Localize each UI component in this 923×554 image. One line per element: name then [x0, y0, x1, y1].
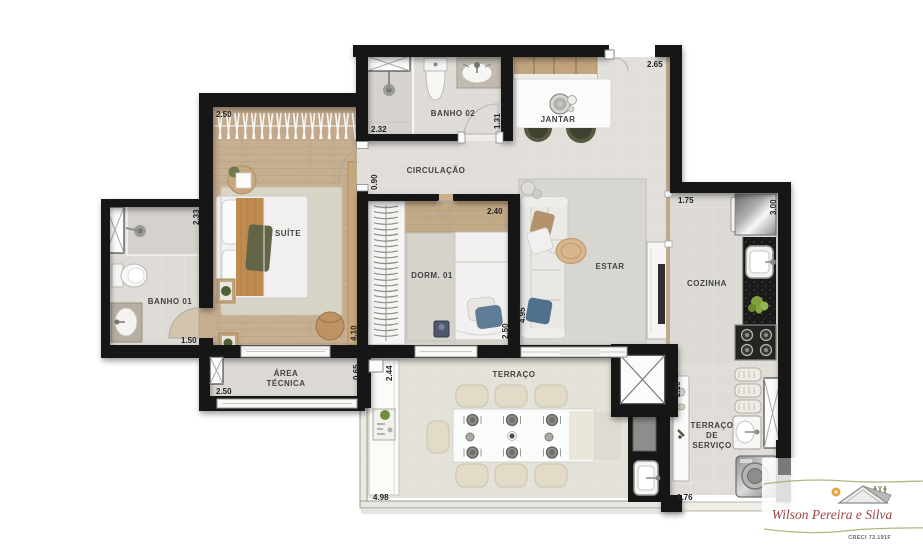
svg-text:Wilson Pereira e Silva: Wilson Pereira e Silva [772, 507, 893, 522]
svg-text:2.40: 2.40 [487, 207, 503, 216]
svg-text:DE: DE [706, 431, 718, 440]
svg-text:2.50: 2.50 [216, 110, 232, 119]
svg-text:2.44: 2.44 [385, 365, 394, 381]
svg-text:4.10: 4.10 [350, 325, 359, 341]
svg-text:0.65: 0.65 [352, 364, 361, 380]
svg-text:4.95: 4.95 [518, 307, 527, 323]
svg-text:2.33: 2.33 [192, 209, 201, 225]
svg-text:JANTAR: JANTAR [541, 115, 576, 124]
svg-text:CIRCULAÇÃO: CIRCULAÇÃO [407, 166, 466, 175]
svg-text:BANHO 02: BANHO 02 [431, 109, 476, 118]
svg-text:ÁREA: ÁREA [274, 369, 299, 378]
svg-text:1.50: 1.50 [181, 336, 197, 345]
svg-text:1.31: 1.31 [493, 113, 502, 129]
svg-text:TERRAÇO: TERRAÇO [690, 421, 733, 430]
svg-text:DORM. 01: DORM. 01 [411, 271, 453, 280]
svg-text:CRECI 72.191F: CRECI 72.191F [848, 535, 891, 541]
svg-text:1.76: 1.76 [677, 493, 693, 502]
svg-text:COZINHA: COZINHA [687, 279, 727, 288]
svg-text:SERVIÇO: SERVIÇO [692, 441, 731, 450]
svg-text:SUÍTE: SUÍTE [275, 229, 301, 238]
svg-text:2.65: 2.65 [647, 60, 663, 69]
svg-text:1.75: 1.75 [678, 196, 694, 205]
svg-text:2.32: 2.32 [371, 125, 387, 134]
svg-text:2.10: 2.10 [673, 381, 682, 397]
svg-text:TÉCNICA: TÉCNICA [266, 379, 305, 388]
svg-text:4.98: 4.98 [373, 493, 389, 502]
svg-text:0.90: 0.90 [370, 174, 379, 190]
svg-text:ESTAR: ESTAR [595, 262, 624, 271]
svg-text:2.50: 2.50 [216, 387, 232, 396]
svg-text:2.50: 2.50 [501, 323, 510, 339]
svg-text:TERRAÇO: TERRAÇO [492, 370, 535, 379]
svg-text:3.00: 3.00 [769, 199, 778, 215]
svg-text:BANHO 01: BANHO 01 [148, 297, 193, 306]
